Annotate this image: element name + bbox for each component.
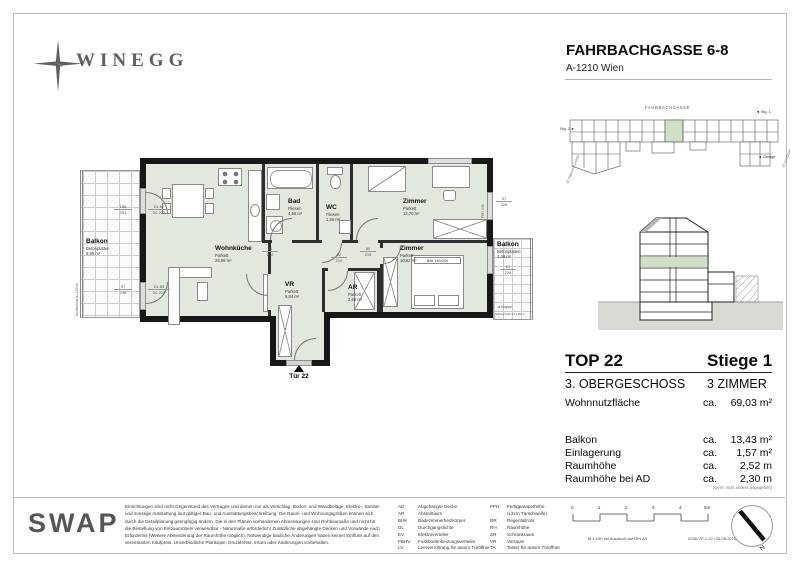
scale-tick-label: 3 [652, 505, 655, 510]
info-row-label: Wohnnutzfläche [565, 397, 640, 409]
info-note: (wenn nicht anders angegeben) [640, 485, 772, 490]
info-row-value: 13,43 m² [715, 434, 772, 446]
floorplan-document-page: WINEGG FAHRBACHGASSE 6-8 A-1210 Wien [0, 0, 800, 566]
dim-value: 226 [496, 202, 512, 207]
dim-label: 62 210 [331, 252, 347, 264]
abbr-text: Fussbodenheizungsverteiler [418, 539, 475, 544]
dim-label: DL 83 DL 219 [148, 284, 170, 296]
pillow [414, 295, 435, 306]
washbasin [266, 194, 280, 210]
abbr-text: Elektroverteiler [418, 532, 449, 537]
wall [324, 312, 493, 318]
wall [324, 312, 330, 366]
abbr-row: (±3cm Türschwelle) [490, 511, 568, 518]
room-name: WC [326, 204, 340, 212]
wall [378, 240, 487, 243]
room-label-balkon-rechts: Balkon Betonplatten 3,48 m² [497, 241, 521, 260]
unit-room-count: 3 ZIMMER [707, 377, 767, 391]
info-row-value: 2,52 m [715, 460, 772, 472]
scale-tick-label: 1 [598, 505, 601, 510]
abbr-text: Vorraum [507, 539, 524, 544]
header-rule [565, 79, 772, 80]
abbr-key: FBHV [398, 539, 418, 546]
sichtschutz-right-annotation: Sichtschutz b=1,20 m [495, 312, 525, 316]
chair [205, 203, 214, 214]
abbr-text: Leerverrohrung für autom.Türöffner [418, 545, 490, 550]
wall [292, 240, 322, 243]
dim-label: 97 226 [496, 196, 512, 208]
room-name: AR [348, 284, 362, 292]
room-name: Balkon [497, 241, 521, 249]
chair [205, 188, 214, 199]
legal-disclaimer: Einrichtungen sind nicht Gegenstand des … [125, 503, 393, 547]
abbr-key: BHK [398, 518, 418, 525]
info-row-value: 2,30 m [715, 473, 772, 485]
north-arrow-icon: N [727, 503, 777, 555]
dim-value: 251 [114, 210, 132, 215]
window [428, 158, 472, 164]
abbr-text: Abgehängte Decke [418, 504, 457, 509]
kitchen-sink [250, 204, 260, 217]
wall [316, 164, 319, 242]
abbr-key: LV [398, 545, 418, 552]
siteplan-stg1-label: ◄ Stg. 1 [756, 110, 771, 114]
abbr-text: Fertigparapethöhe [507, 504, 545, 509]
room-name: Balkon [86, 238, 110, 246]
abbr-row: RHRaumhöhe [490, 525, 568, 532]
dim-value: DL 219 [148, 290, 170, 295]
unit-top-number: TOP 22 [565, 351, 623, 371]
room-label-vr: VR Parkett 9,84 m² [285, 281, 299, 300]
entrance-door-label: Tür 22 [284, 373, 314, 380]
dining-table [172, 184, 204, 218]
bed-single [368, 166, 406, 192]
wall [487, 158, 493, 318]
abbr-text: Abstellraum [418, 511, 442, 516]
dim-value: 210 [331, 258, 347, 263]
abbr-key: VR [490, 539, 507, 546]
wardrobe [383, 257, 398, 307]
siteplan-garage-label: ◄ Garage [758, 155, 775, 159]
room-area: 2,66 m² [348, 297, 362, 302]
room-name: Zimmer [403, 198, 426, 206]
siteplan-stg2-label: Stg. 2 ► [560, 127, 575, 131]
info-row-label: Raumhöhe bei AD [565, 473, 650, 485]
site-key-plan: FAHRBACHGASSE ◄ Stg. 1 Stg. 2 ► ◄ Garage… [560, 96, 790, 188]
abbr-key: RH [490, 525, 507, 532]
wardrobe [433, 219, 487, 239]
project-title: FAHRBACHGASSE 6-8 [566, 42, 729, 59]
project-address: A-1210 Wien [566, 63, 624, 74]
toilet-tank [327, 167, 343, 175]
footer-rule [13, 497, 785, 498]
print-scale-note: M 1:100 bei Ausdruck auf DIN A4 [588, 536, 647, 541]
unit-floor-level: 3. OBERGESCHOSS [565, 377, 685, 391]
abbr-text: Schrankraum [507, 532, 534, 537]
abbr-text: Raumhöhe [507, 525, 529, 530]
abbr-text: Badezimmerheizkörper [418, 518, 465, 523]
room-name: Wohnküche [215, 245, 252, 253]
abbr-key: SR [490, 532, 507, 539]
siteplan-street-right-label: SCHLOSSHOFER STRASSE [781, 128, 790, 169]
abbr-key: EV [398, 532, 418, 539]
dim-label: 186 251 [114, 204, 132, 216]
wc-basin [339, 220, 351, 234]
room-label-wohnkueche: Wohnküche Parkett 26,99 m² [215, 245, 252, 264]
wall [270, 316, 276, 366]
info-row-value: 1,57 m² [715, 447, 772, 459]
abbr-row: FPHFertigparapethöhe [490, 504, 568, 511]
abbr-key: FPH [490, 504, 507, 511]
klappe-annotation: ◄ Klappe [497, 305, 512, 309]
info-row-value: 69,03 m² [715, 397, 772, 409]
building-section-drawing [598, 210, 783, 335]
dim-label: 80 210 [262, 246, 278, 258]
abbreviation-list-right: FPHFertigparapethöhe (±3cm Türschwelle) … [490, 504, 568, 552]
scale-tick-label: 5m [704, 505, 711, 510]
room-name: Bad [288, 198, 302, 206]
desk [432, 166, 470, 188]
dim-value: 236 [114, 290, 132, 295]
room-area: 9,95 m² [86, 251, 110, 256]
scale-tick-label: 4 [679, 505, 682, 510]
dim-value: 210 [262, 252, 278, 257]
abbr-key: DL [398, 525, 418, 532]
side-table [197, 282, 208, 301]
sichtschutz-left-annotation: Sichtschutz b=1,60 m [75, 283, 79, 316]
wardrobe [278, 305, 292, 357]
room-area: 3,48 m² [497, 254, 521, 259]
room-label-balkon-links: Balkon Betonplatten 9,95 m² [86, 238, 110, 257]
room-area: 26,99 m² [215, 258, 252, 263]
room-area: 12,70 m² [403, 211, 426, 216]
dim-label: 97 236 [114, 284, 132, 296]
toilet-bowl [330, 175, 341, 189]
wall [348, 268, 380, 271]
sofa [168, 267, 180, 325]
unit-stiege: Stiege 1 [707, 351, 772, 371]
abbr-row: SRSchrankraum [490, 532, 568, 539]
scale-tick-label: 2 [625, 505, 628, 510]
abbr-text: Taster für autom.Türöffner [507, 545, 560, 550]
room-label-zimmer-mitte: Zimmer Parkett 10,62 m² [400, 245, 423, 264]
abbr-key: AD [398, 504, 418, 511]
wall [353, 240, 358, 243]
window [487, 246, 493, 274]
abbr-text: Regenfallrohr [507, 518, 535, 523]
window [487, 192, 493, 220]
abbr-text: (±3cm Türschwelle) [507, 511, 547, 516]
room-label-ar: AR Parkett 2,66 m² [348, 284, 362, 303]
stove [218, 168, 242, 186]
dim-value: 219 [360, 252, 376, 257]
brand-logo-text: WINEGG [76, 50, 188, 72]
chair [162, 188, 171, 199]
room-area: 9,84 m² [285, 294, 299, 299]
architect-logo-text: SWAP [28, 508, 120, 539]
dim-label: DL 82 DL 222 [148, 204, 170, 216]
pillow [438, 295, 459, 306]
info-row-label: Balkon [565, 434, 597, 446]
siteplan-street-top-label: FAHRBACHGASSE [645, 105, 690, 110]
room-label-bad: Bad Fliesen 4,66 m² [288, 198, 302, 217]
room-label-zimmer-oben: Zimmer Parkett 12,70 m² [403, 198, 426, 217]
north-label: N [759, 544, 767, 553]
scale-tick-label: 0 [571, 505, 574, 510]
info-rule [565, 372, 772, 373]
dim-label: 97 226 [500, 264, 516, 276]
abbr-key: AR [398, 511, 418, 518]
room-label-wc: WC Fliesen 1,56 m² [326, 204, 340, 223]
info-row-label: Raumhöhe [565, 460, 616, 472]
wall [322, 268, 325, 312]
dim-value: DL 222 [148, 210, 170, 215]
abbr-text: Durchgangslichte [418, 525, 454, 530]
dim-value: 226 [500, 270, 516, 275]
room-area: 4,66 m² [288, 211, 302, 216]
wall [262, 164, 265, 242]
abbr-key: RR [490, 518, 507, 525]
bathtub-basin [270, 170, 312, 188]
scale-bar: 0 1 2 3 4 5m [570, 500, 720, 526]
abbr-row: RRRegenfallrohr [490, 518, 568, 525]
abbr-row: TATaster für autom.Türöffner [490, 545, 568, 552]
abbr-key: TA [490, 545, 507, 552]
dim-label: 80 219 [360, 246, 376, 258]
wall [342, 240, 353, 243]
abbr-row: VRVorraum [490, 539, 568, 546]
fph-annotation: FPH 0,90 [481, 204, 485, 218]
desk-chair [443, 190, 456, 201]
room-name: Zimmer [400, 245, 423, 253]
entrance-triangle-icon [294, 365, 304, 372]
wall [140, 316, 276, 322]
room-name: VR [285, 281, 299, 289]
info-row-label: Einlagerung [565, 447, 621, 459]
room-area: 1,56 m² [326, 217, 340, 222]
wall [377, 268, 380, 312]
section-highlight-floor [641, 257, 707, 267]
wall [268, 310, 271, 316]
room-area: 10,62 m² [400, 258, 423, 263]
